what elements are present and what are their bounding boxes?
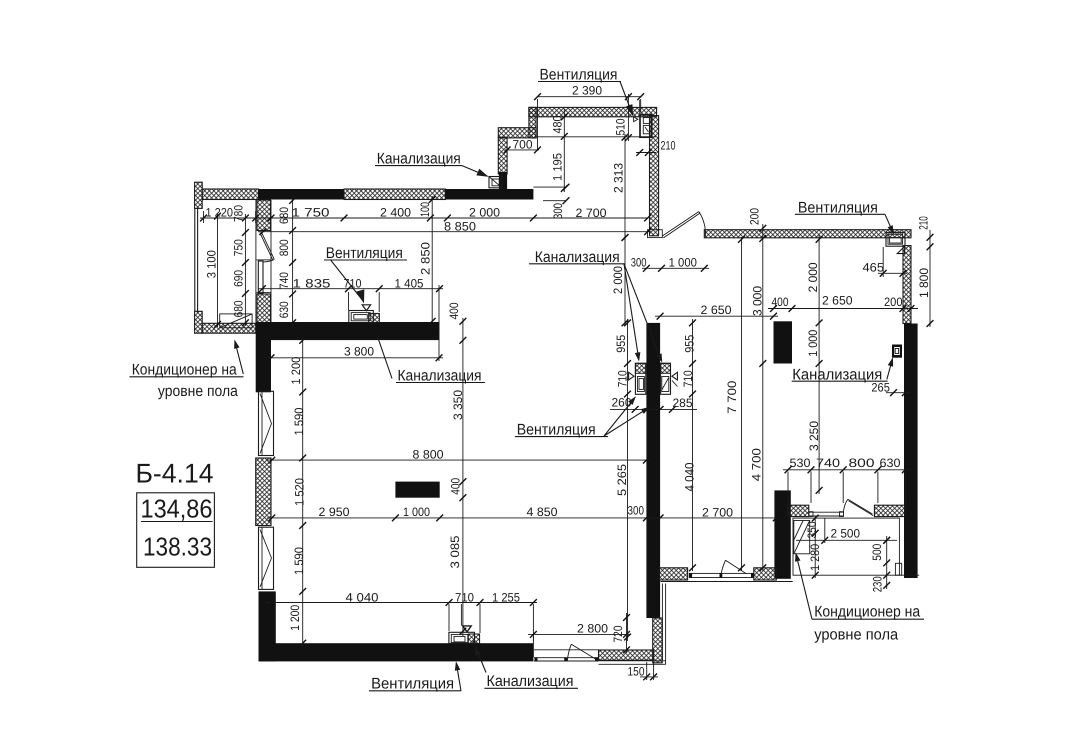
svg-text:уровне пола: уровне пола (158, 383, 238, 400)
svg-text:1 800: 1 800 (917, 268, 931, 298)
svg-text:2 313: 2 313 (612, 163, 626, 193)
svg-text:700: 700 (513, 138, 533, 152)
svg-text:150: 150 (628, 665, 645, 679)
svg-text:1 000: 1 000 (403, 505, 430, 519)
svg-text:955: 955 (683, 335, 697, 353)
svg-text:1 000: 1 000 (669, 256, 698, 270)
svg-text:1 195: 1 195 (551, 153, 565, 181)
svg-text:1 200: 1 200 (289, 356, 303, 384)
svg-text:210: 210 (661, 139, 676, 153)
svg-text:4 040: 4 040 (683, 462, 697, 491)
svg-text:2 000: 2 000 (806, 262, 820, 292)
svg-text:2 500: 2 500 (831, 527, 861, 541)
svg-text:2 700: 2 700 (702, 506, 733, 520)
svg-text:100: 100 (418, 202, 432, 217)
svg-text:7 700: 7 700 (725, 380, 739, 413)
svg-text:740: 740 (816, 456, 840, 470)
svg-text:690: 690 (232, 270, 246, 287)
svg-text:955: 955 (614, 335, 628, 353)
svg-text:630: 630 (880, 456, 901, 470)
svg-text:Канализация: Канализация (487, 673, 574, 690)
svg-text:уровне пола: уровне пола (814, 627, 898, 644)
svg-text:2 950: 2 950 (319, 505, 350, 519)
svg-text:200: 200 (748, 208, 762, 225)
svg-text:Канализация: Канализация (377, 151, 461, 168)
svg-text:3 100: 3 100 (205, 250, 219, 278)
svg-text:Кондиционер на: Кондиционер на (132, 362, 237, 379)
svg-text:710: 710 (616, 370, 630, 387)
svg-text:1 255: 1 255 (492, 591, 520, 605)
svg-text:800: 800 (277, 239, 291, 256)
svg-text:3 800: 3 800 (344, 345, 374, 359)
svg-text:134,86: 134,86 (141, 494, 213, 524)
svg-text:230: 230 (871, 576, 885, 592)
svg-text:4 040: 4 040 (346, 591, 379, 605)
svg-text:2 000: 2 000 (469, 206, 500, 220)
svg-text:4 700: 4 700 (750, 448, 764, 481)
svg-text:400: 400 (447, 302, 461, 319)
svg-text:8 800: 8 800 (413, 448, 444, 462)
svg-text:Б-4.14: Б-4.14 (136, 459, 214, 489)
svg-text:2 700: 2 700 (576, 206, 607, 220)
svg-text:138.33: 138.33 (143, 532, 212, 562)
svg-text:4 850: 4 850 (527, 505, 558, 519)
svg-text:710: 710 (681, 370, 695, 387)
svg-text:1 750: 1 750 (292, 206, 330, 220)
svg-text:800: 800 (849, 456, 875, 470)
svg-text:740: 740 (277, 272, 291, 289)
svg-text:1 520: 1 520 (293, 478, 307, 506)
svg-text:8 850: 8 850 (444, 220, 476, 234)
svg-text:480: 480 (551, 115, 565, 133)
svg-text:3 000: 3 000 (751, 286, 765, 316)
svg-text:400: 400 (449, 478, 463, 495)
svg-text:2 400: 2 400 (380, 206, 411, 220)
svg-text:750: 750 (232, 239, 246, 256)
svg-text:1 590: 1 590 (292, 407, 306, 435)
svg-text:2 800: 2 800 (577, 622, 608, 636)
svg-text:285: 285 (673, 396, 693, 410)
svg-text:510: 510 (614, 118, 628, 135)
svg-text:1 200: 1 200 (288, 605, 302, 631)
svg-text:1 835: 1 835 (293, 277, 331, 291)
svg-text:5 265: 5 265 (615, 464, 629, 496)
svg-text:1 220: 1 220 (206, 206, 234, 220)
svg-text:3 085: 3 085 (448, 535, 462, 568)
svg-text:1 000: 1 000 (806, 330, 820, 357)
svg-text:1 590: 1 590 (292, 547, 306, 575)
svg-text:300: 300 (628, 504, 645, 518)
svg-text:Кондиционер на: Кондиционер на (814, 604, 920, 621)
svg-text:780: 780 (232, 205, 246, 222)
svg-text:3 350: 3 350 (451, 390, 465, 420)
svg-text:1 405: 1 405 (395, 277, 424, 291)
svg-text:400: 400 (772, 295, 789, 309)
svg-text:2 650: 2 650 (822, 294, 853, 308)
svg-text:680: 680 (277, 207, 291, 224)
svg-text:630: 630 (277, 301, 291, 318)
svg-text:Вентиляция: Вентиляция (371, 676, 454, 693)
svg-text:2 390: 2 390 (572, 84, 602, 98)
svg-text:260: 260 (612, 396, 632, 410)
svg-text:1 280: 1 280 (808, 544, 822, 571)
svg-text:350: 350 (805, 521, 819, 538)
svg-text:300: 300 (551, 203, 565, 219)
svg-text:680: 680 (232, 300, 246, 317)
svg-text:3 250: 3 250 (807, 421, 821, 451)
svg-text:720: 720 (611, 625, 625, 642)
svg-text:200: 200 (884, 295, 903, 309)
svg-text:210: 210 (917, 216, 931, 230)
svg-text:465: 465 (863, 261, 885, 275)
svg-text:530: 530 (790, 456, 811, 470)
svg-text:500: 500 (870, 544, 884, 561)
svg-text:300: 300 (631, 256, 647, 270)
svg-text:Вентиляция: Вентиляция (517, 422, 596, 439)
svg-text:2 000: 2 000 (611, 266, 625, 294)
svg-text:2 850: 2 850 (419, 242, 433, 275)
svg-text:2 650: 2 650 (701, 303, 732, 317)
svg-text:710: 710 (455, 591, 474, 605)
